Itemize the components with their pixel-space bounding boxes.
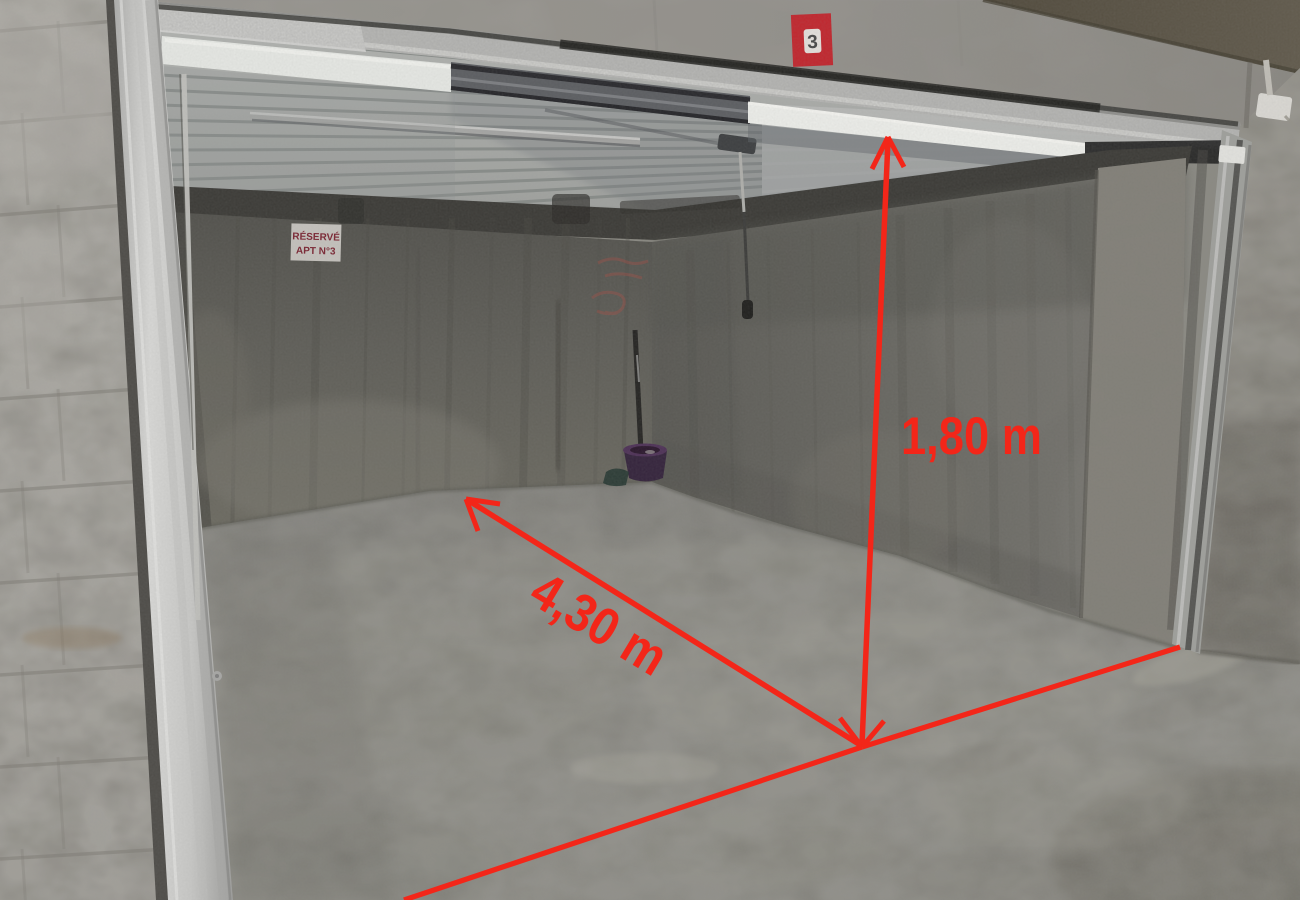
- svg-text:1,80 m: 1,80 m: [901, 407, 1042, 466]
